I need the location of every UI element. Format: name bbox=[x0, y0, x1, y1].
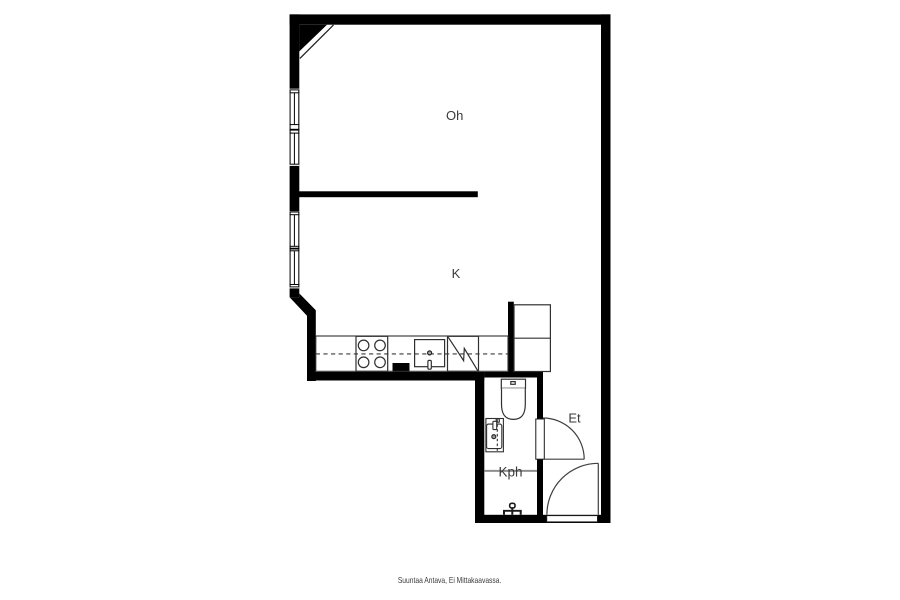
svg-text:Et: Et bbox=[568, 410, 581, 425]
svg-text:K: K bbox=[452, 266, 461, 281]
svg-text:Oh: Oh bbox=[446, 108, 463, 123]
svg-text:Kph: Kph bbox=[498, 465, 522, 480]
svg-text:Suuntaa Antava, Ei Mittakaavas: Suuntaa Antava, Ei Mittakaavassa. bbox=[398, 575, 502, 585]
